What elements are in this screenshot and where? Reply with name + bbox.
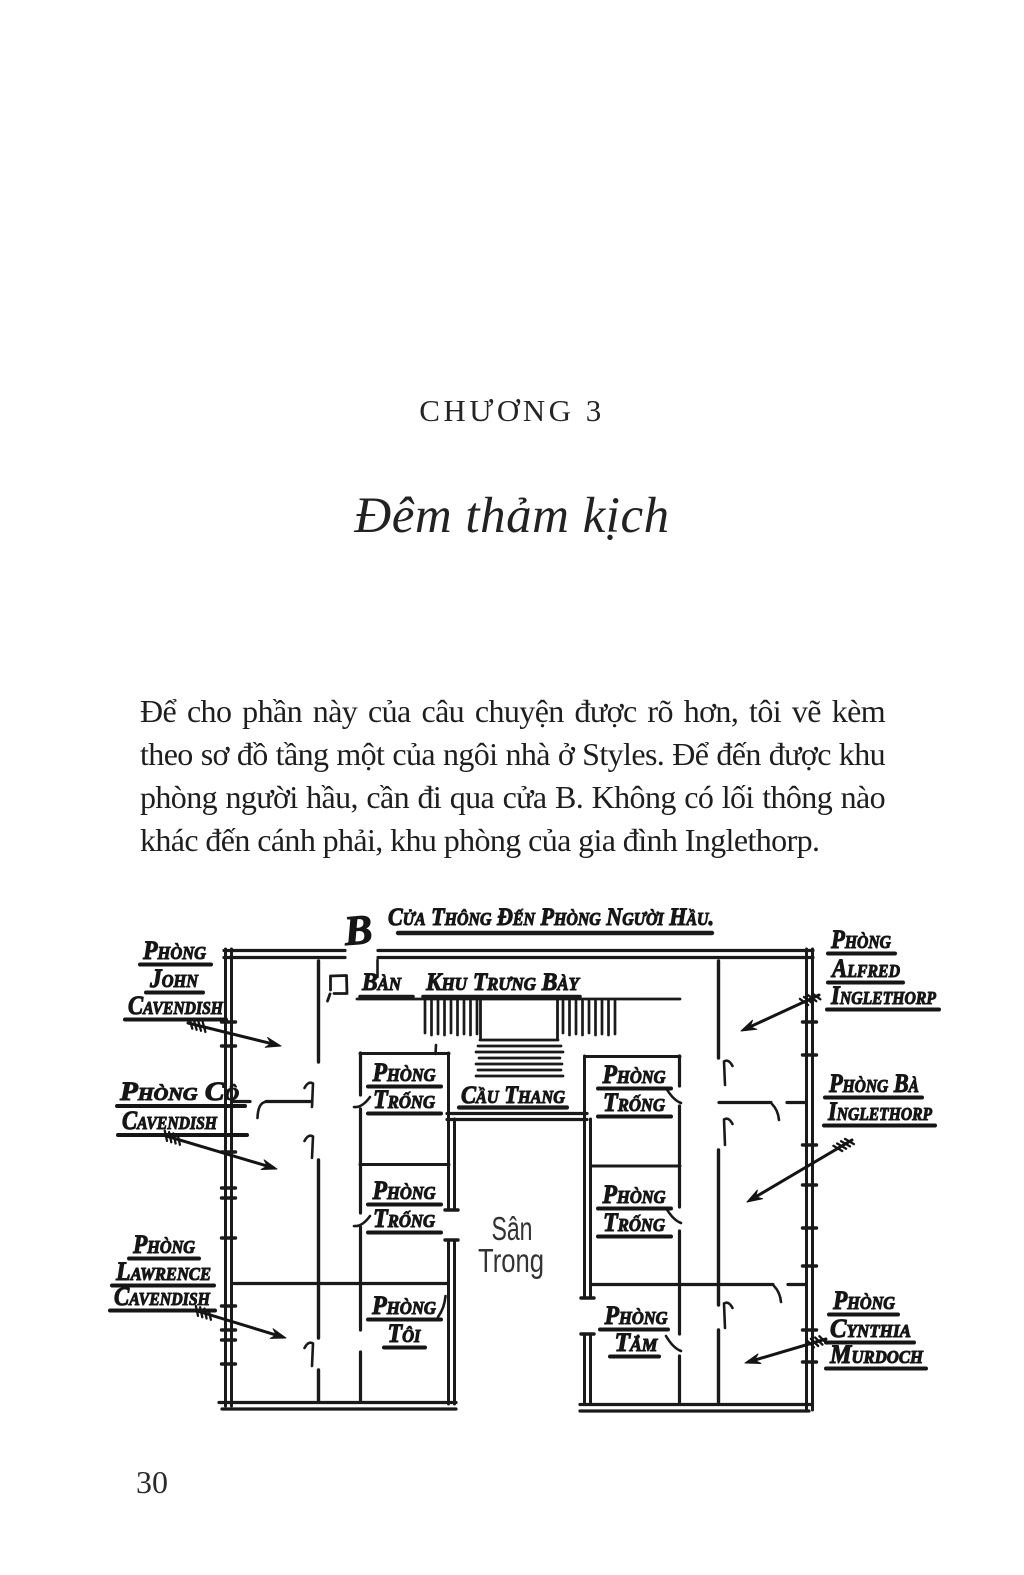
svg-text:Cầu Thang: Cầu Thang: [461, 1082, 565, 1109]
svg-text:Trống: Trống: [373, 1204, 435, 1233]
svg-text:Phòng: Phòng: [832, 1286, 895, 1315]
svg-text:Phòng: Phòng: [604, 1301, 668, 1330]
svg-text:Phòng: Phòng: [372, 1176, 436, 1205]
svg-text:Phòng: Phòng: [132, 1230, 195, 1259]
svg-text:Phòng: Phòng: [830, 925, 891, 954]
svg-text:Khu Trưng Bày: Khu Trưng Bày: [425, 969, 581, 996]
svg-text:Inglethorp: Inglethorp: [827, 1097, 933, 1126]
svg-text:John: John: [149, 964, 199, 993]
svg-text:Phòng Bà: Phòng Bà: [828, 1069, 919, 1098]
svg-text:Tôi: Tôi: [388, 1319, 422, 1348]
svg-text:Phòng: Phòng: [372, 1058, 436, 1087]
svg-text:Trống: Trống: [373, 1085, 435, 1114]
svg-text:Tắm: Tắm: [615, 1328, 659, 1357]
svg-text:Cavendish: Cavendish: [128, 991, 224, 1020]
svg-text:Cavendish: Cavendish: [122, 1106, 218, 1135]
svg-text:Cửa Thông Đến Phòng Người Hầu.: Cửa Thông Đến Phòng Người Hầu.: [388, 904, 714, 931]
svg-text:B: B: [341, 907, 374, 955]
svg-text:Phòng: Phòng: [142, 936, 206, 965]
svg-text:Trống: Trống: [603, 1088, 665, 1117]
svg-text:Cynthia: Cynthia: [830, 1314, 911, 1343]
svg-text:Inglethorp: Inglethorp: [830, 981, 937, 1010]
svg-text:Trống: Trống: [603, 1208, 665, 1237]
svg-text:Phòng: Phòng: [602, 1180, 666, 1209]
svg-text:Trong: Trong: [478, 1242, 544, 1279]
svg-text:Alfred: Alfred: [830, 954, 900, 983]
svg-text:Phòng: Phòng: [371, 1291, 436, 1320]
svg-text:Phòng Cô: Phòng Cô: [119, 1077, 239, 1106]
svg-text:Bàn: Bàn: [361, 969, 402, 996]
svg-text:Phòng: Phòng: [602, 1060, 666, 1089]
